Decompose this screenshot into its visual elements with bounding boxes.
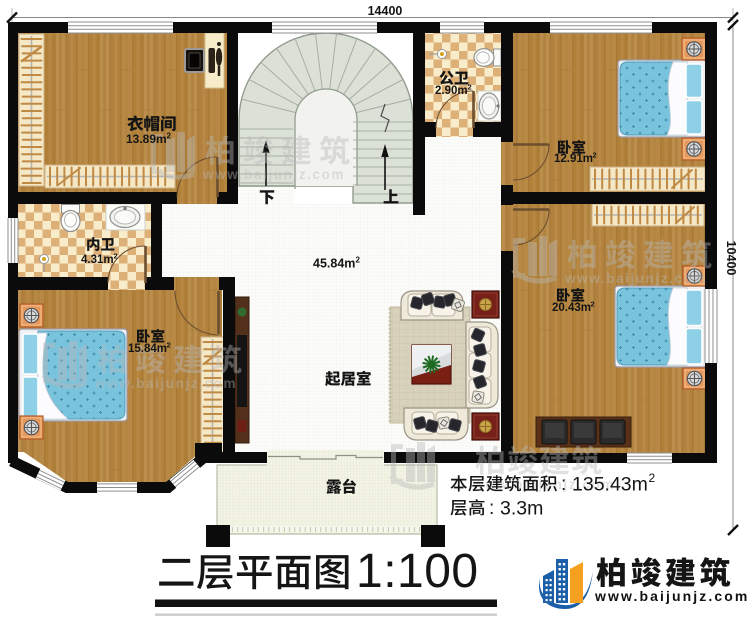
svg-text:2: 2 — [649, 471, 656, 485]
svg-text:www.baijunjz.com: www.baijunjz.com — [564, 271, 707, 286]
svg-text:www.baijunjz.com: www.baijunjz.com — [94, 376, 237, 391]
svg-text:10400: 10400 — [724, 241, 738, 276]
svg-text:135.43m: 135.43m — [572, 474, 648, 496]
svg-text:4.31m: 4.31m — [81, 254, 114, 266]
svg-text:2: 2 — [167, 132, 172, 141]
svg-text:2: 2 — [114, 252, 118, 261]
svg-text::: : — [489, 498, 494, 519]
svg-text:20.43m: 20.43m — [552, 302, 591, 314]
svg-text:www.baijunjz.com: www.baijunjz.com — [594, 588, 749, 604]
svg-text:13.89m: 13.89m — [126, 132, 167, 146]
svg-text:2: 2 — [356, 256, 361, 265]
svg-text:15.84m: 15.84m — [128, 343, 167, 355]
svg-text:1:100: 1:100 — [356, 545, 479, 598]
svg-text:12.91m: 12.91m — [554, 153, 593, 165]
svg-text:14400: 14400 — [368, 4, 403, 18]
svg-text:3.3m: 3.3m — [500, 498, 543, 520]
svg-text:2.90m: 2.90m — [435, 85, 468, 97]
svg-text::: : — [561, 474, 566, 495]
svg-text:2: 2 — [593, 151, 597, 160]
svg-text:2: 2 — [591, 300, 595, 309]
svg-text:2: 2 — [468, 83, 472, 92]
svg-text:www.baijunjz.com: www.baijunjz.com — [202, 167, 345, 182]
svg-text:2: 2 — [167, 341, 171, 350]
svg-text:45.84m: 45.84m — [313, 257, 355, 271]
